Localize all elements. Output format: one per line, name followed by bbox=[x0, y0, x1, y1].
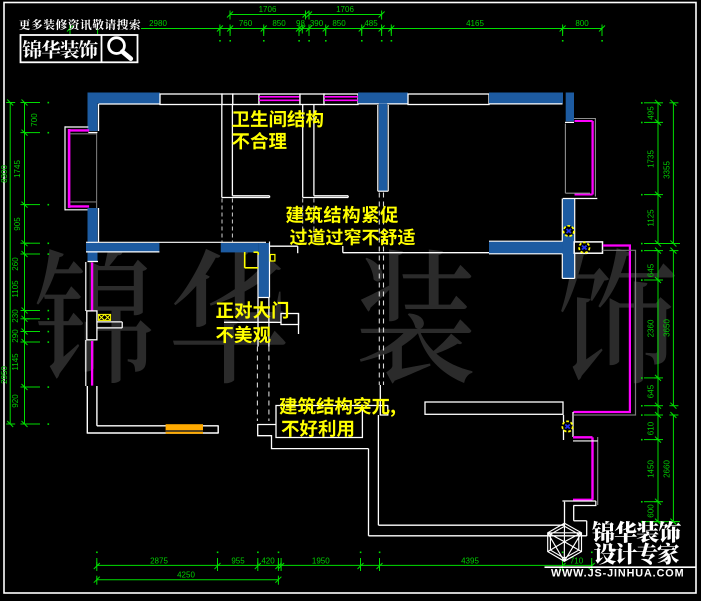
svg-text:4395: 4395 bbox=[461, 557, 479, 566]
svg-text:420: 420 bbox=[261, 557, 275, 566]
svg-text:1450: 1450 bbox=[647, 460, 656, 478]
svg-text:610: 610 bbox=[647, 421, 656, 435]
svg-text:230: 230 bbox=[11, 309, 20, 323]
svg-text:1145: 1145 bbox=[11, 353, 20, 371]
svg-text:800: 800 bbox=[575, 19, 589, 28]
svg-text:2875: 2875 bbox=[150, 557, 168, 566]
svg-text:920: 920 bbox=[11, 394, 20, 408]
svg-text:1735: 1735 bbox=[647, 150, 656, 168]
svg-text:4165: 4165 bbox=[466, 19, 484, 28]
svg-text:260: 260 bbox=[11, 257, 20, 271]
svg-text:WWW.JS-JINHUA.COM: WWW.JS-JINHUA.COM bbox=[551, 568, 684, 580]
svg-text:3355: 3355 bbox=[663, 161, 672, 179]
svg-text:8300: 8300 bbox=[0, 165, 9, 183]
svg-text:495: 495 bbox=[647, 106, 656, 120]
svg-text:1745: 1745 bbox=[13, 160, 22, 178]
svg-text:760: 760 bbox=[239, 19, 253, 28]
svg-text:4250: 4250 bbox=[177, 570, 195, 579]
svg-text:850: 850 bbox=[332, 19, 346, 28]
svg-text:2360: 2360 bbox=[647, 319, 656, 337]
svg-text:645: 645 bbox=[647, 263, 656, 277]
svg-text:290: 290 bbox=[11, 329, 20, 343]
svg-text:485: 485 bbox=[364, 19, 378, 28]
svg-text:1706: 1706 bbox=[259, 5, 277, 14]
svg-text:905: 905 bbox=[13, 217, 22, 231]
svg-text:710: 710 bbox=[570, 557, 584, 566]
svg-text:3650: 3650 bbox=[663, 319, 672, 337]
svg-text:1950: 1950 bbox=[312, 557, 330, 566]
svg-text:1105: 1105 bbox=[11, 280, 20, 298]
svg-text:2660: 2660 bbox=[663, 460, 672, 478]
svg-text:2980: 2980 bbox=[149, 19, 167, 28]
svg-text:850: 850 bbox=[272, 19, 286, 28]
svg-text:1706: 1706 bbox=[336, 5, 354, 14]
svg-text:390: 390 bbox=[310, 19, 324, 28]
svg-text:98: 98 bbox=[296, 19, 305, 28]
svg-text:1125: 1125 bbox=[647, 209, 656, 227]
svg-text:600: 600 bbox=[647, 504, 656, 518]
svg-text:645: 645 bbox=[647, 384, 656, 398]
svg-text:2950: 2950 bbox=[0, 366, 9, 384]
svg-text:700: 700 bbox=[30, 113, 39, 127]
svg-text:955: 955 bbox=[231, 557, 245, 566]
